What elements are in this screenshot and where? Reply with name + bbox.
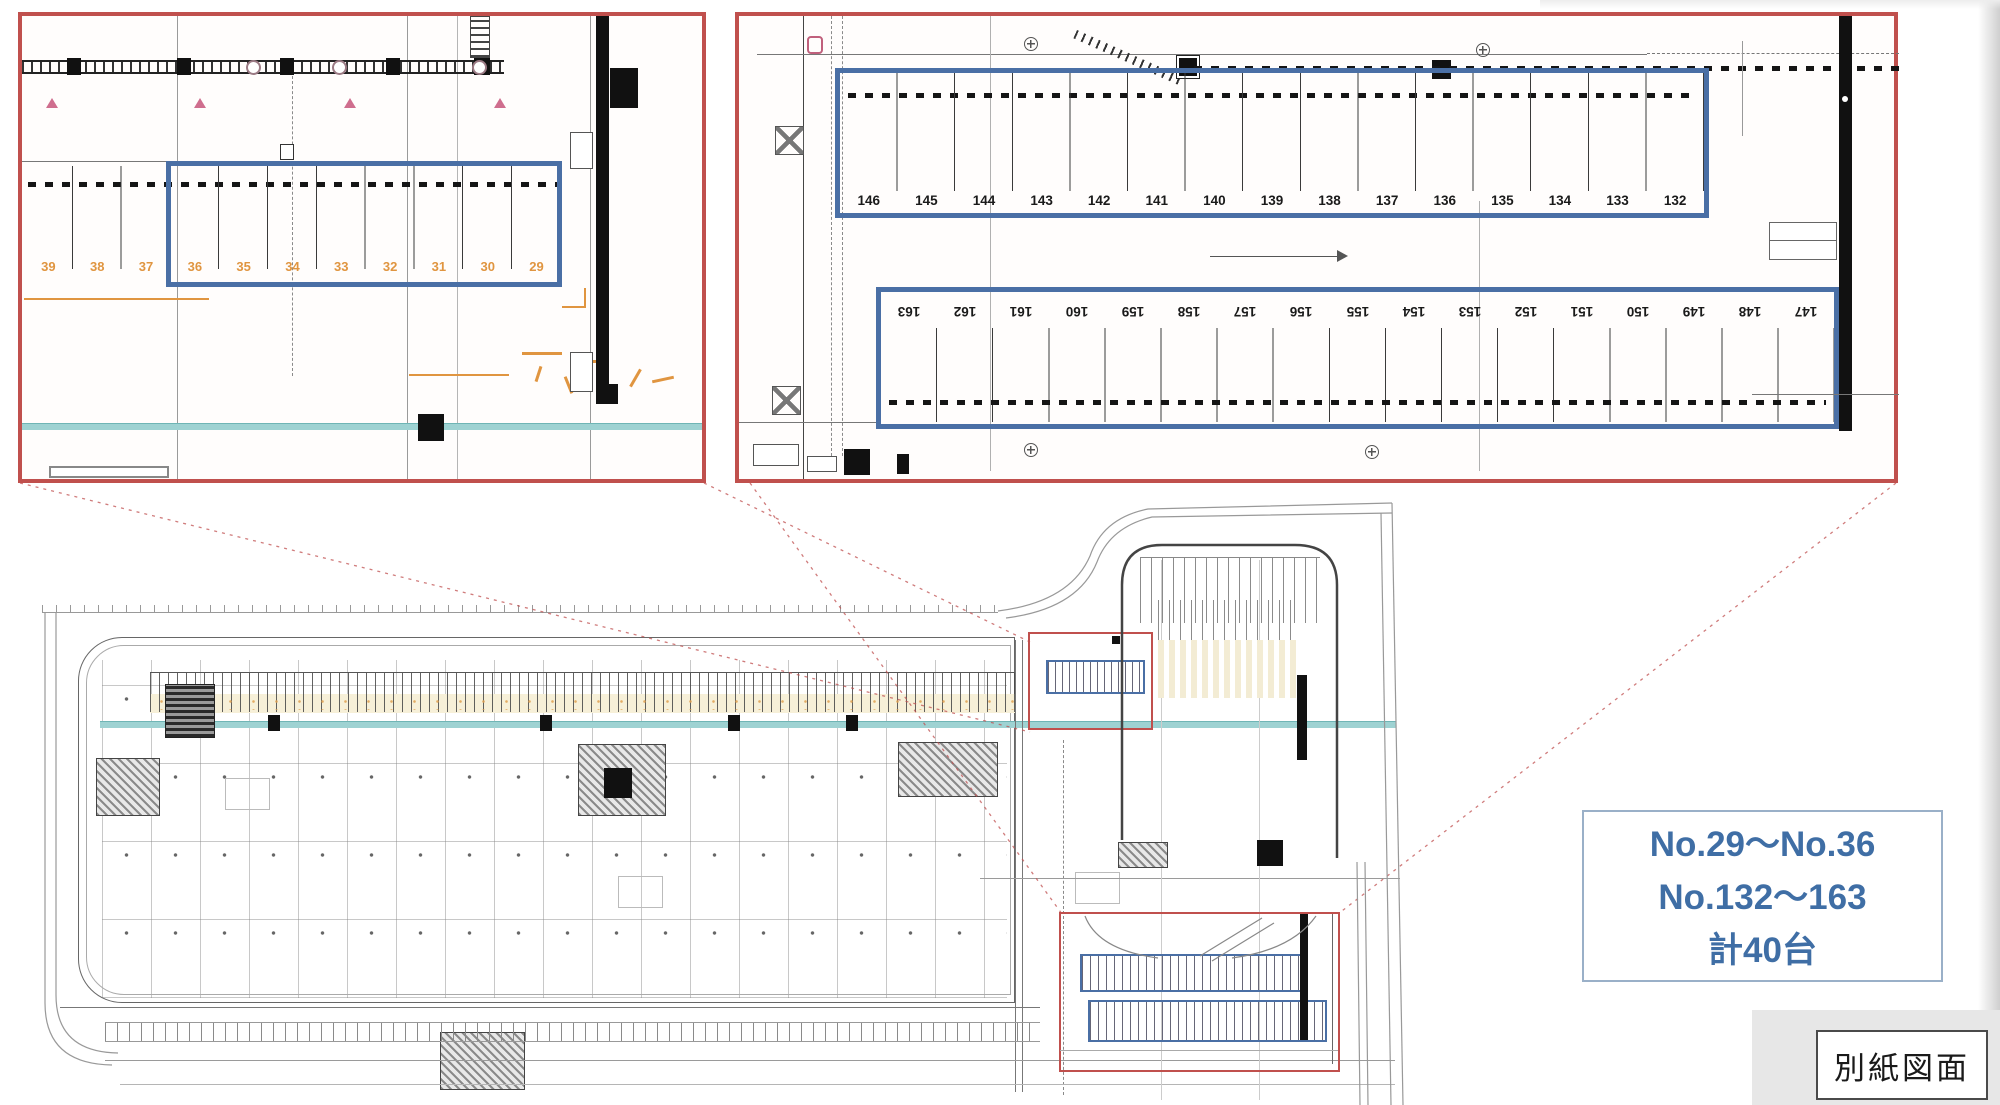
stall-number-label: 143	[1013, 193, 1071, 208]
bottom-line	[739, 422, 876, 423]
thick-wall	[1839, 16, 1852, 431]
rail-circle	[246, 60, 261, 75]
summary-line-total: 計40台	[1584, 924, 1941, 977]
yard-dock-loop	[1122, 545, 1337, 858]
stall-number-label: 140	[1186, 193, 1244, 208]
stall-number-label: 150	[1610, 304, 1666, 319]
stall-number-label: 157	[1217, 304, 1273, 319]
stall-number-label: 161	[993, 304, 1049, 319]
stall-dividers	[881, 328, 1834, 422]
attachment-label: 別紙図面	[1816, 1030, 1988, 1100]
attachment-label-text: 別紙図面	[1834, 1043, 1970, 1088]
bottom-fixture	[897, 454, 909, 474]
stall-number-label: 159	[1105, 304, 1161, 319]
aisle-arrow-head	[1337, 250, 1348, 262]
rail-circle	[332, 60, 347, 75]
gridline	[1742, 41, 1743, 136]
highlight-box-132-146: 1461451441431421411401391381371361351341…	[835, 68, 1709, 218]
yard-boundary	[45, 503, 1403, 1105]
stall-number-label: 155	[1330, 304, 1386, 319]
highlight-box-147-163: 1631621611601591581571561551541531521511…	[876, 287, 1839, 429]
stall-number-label: 154	[1386, 304, 1442, 319]
leader-line	[750, 483, 1062, 914]
survey-triangle	[344, 98, 356, 108]
survey-plus-symbol	[1365, 445, 1379, 459]
bottom-fixture-box	[807, 456, 837, 472]
teal-node	[418, 414, 444, 441]
parking-plan-page: 3938373635343332313029	[0, 0, 2000, 1105]
summary-line-range-2: No.132〜163	[1584, 871, 1941, 924]
gray-tray	[49, 466, 169, 478]
orange-figure	[629, 369, 642, 388]
summary-line-range-1: No.29〜No.36	[1584, 818, 1941, 871]
wall-opening	[570, 352, 593, 392]
lower-callout-curves	[1085, 916, 1316, 961]
orange-figure	[522, 352, 562, 355]
orange-line	[24, 298, 209, 300]
stall-number-label: 163	[881, 304, 937, 319]
capacity-summary-box: No.29〜No.36 No.132〜163 計40台	[1582, 810, 1943, 982]
stall-number-label: 37	[122, 259, 171, 274]
right-cross-line	[1752, 394, 1899, 395]
column-hatched	[470, 16, 490, 58]
leader-line	[20, 483, 1030, 732]
orange-figure	[652, 376, 674, 384]
stall-number-label: 149	[1666, 304, 1722, 319]
stall-number-label: 134	[1531, 193, 1589, 208]
bottom-fixture	[844, 449, 870, 475]
inset-teal-line	[22, 423, 702, 430]
stall-number-label: 146	[840, 193, 898, 208]
stall-number-label: 141	[1128, 193, 1186, 208]
red-fixture-mark	[807, 36, 823, 54]
roof-edge-line	[757, 54, 1647, 55]
wall-dot	[1842, 96, 1848, 102]
survey-plus-symbol	[1024, 37, 1038, 51]
left-detail-inset: 3938373635343332313029	[18, 12, 706, 483]
stall-number-label: 156	[1273, 304, 1329, 319]
bracket-detail	[1769, 222, 1837, 260]
stall-number-label: 162	[937, 304, 993, 319]
right-detail-inset: 1461451441431421411401391381371361351341…	[735, 12, 1898, 483]
orange-figure	[535, 366, 543, 382]
stall-number-label: 38	[73, 259, 122, 274]
wall-opening	[570, 132, 593, 169]
crane-rail-block	[67, 58, 81, 75]
orange-annotation	[409, 374, 509, 376]
wall-column-stack	[596, 16, 609, 404]
stall-number-label: 132	[1646, 193, 1704, 208]
stall-number-label: 153	[1442, 304, 1498, 319]
roof-edge-dashdot	[1647, 53, 1899, 54]
crane-rail-block	[386, 58, 400, 75]
stall-dividers	[840, 73, 1704, 191]
stall-number-row: 1461451441431421411401391381371361351341…	[840, 189, 1704, 211]
stall-number-row: 1631621611601591581571561551541531521511…	[881, 300, 1834, 322]
highlight-box-29-36	[166, 161, 562, 287]
stall-number-label: 145	[898, 193, 956, 208]
inset-wall-line	[803, 16, 804, 479]
stall-number-label: 152	[1498, 304, 1554, 319]
rail-circle	[472, 60, 487, 75]
bottom-fixture-box	[753, 444, 799, 466]
inset-dashed-line	[831, 16, 832, 456]
stall-number-label: 137	[1358, 193, 1416, 208]
leader-line	[704, 483, 1030, 642]
orange-corner	[562, 288, 586, 308]
stall-number-label: 39	[24, 259, 73, 274]
survey-plus-symbol	[1476, 43, 1490, 57]
stall-number-label: 160	[1049, 304, 1105, 319]
column-symbol	[772, 386, 801, 415]
stall-number-label: 151	[1554, 304, 1610, 319]
survey-triangle	[194, 98, 206, 108]
aisle-arrow-line	[1210, 256, 1340, 257]
crane-rail	[22, 60, 504, 74]
wheel-stop-line	[889, 400, 1826, 405]
stall-number-label: 139	[1243, 193, 1301, 208]
survey-plus-symbol	[1024, 443, 1038, 457]
stall-number-label: 144	[955, 193, 1013, 208]
survey-triangle	[494, 98, 506, 108]
stall-number-label: 136	[1416, 193, 1474, 208]
survey-triangle	[46, 98, 58, 108]
column-symbol	[775, 126, 804, 155]
stall-number-label: 147	[1778, 304, 1834, 319]
stall-number-label: 142	[1070, 193, 1128, 208]
crane-rail-block	[177, 58, 191, 75]
crane-rail-block	[280, 58, 294, 75]
hydrant-symbol	[280, 144, 294, 160]
bracket-line	[1769, 240, 1837, 241]
wall-block	[610, 68, 638, 108]
stall-number-label: 135	[1474, 193, 1532, 208]
stall-number-label: 148	[1722, 304, 1778, 319]
stall-number-label: 158	[1161, 304, 1217, 319]
stall-number-label: 138	[1301, 193, 1359, 208]
stall-number-label: 133	[1589, 193, 1647, 208]
wall-foot	[596, 384, 618, 404]
stall-top-line	[22, 161, 166, 162]
gridline	[590, 16, 591, 479]
